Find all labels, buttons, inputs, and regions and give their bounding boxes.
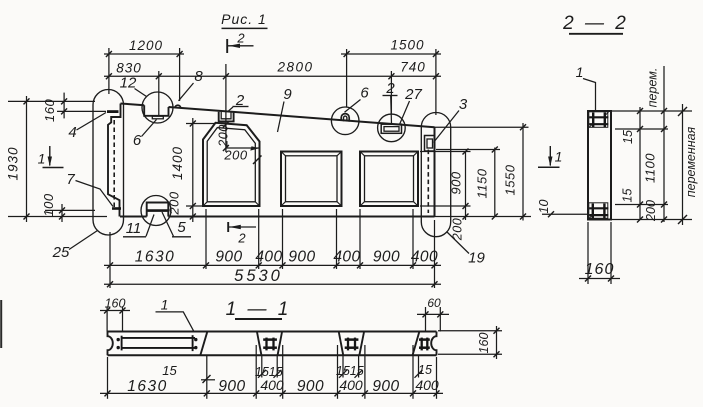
svg-text:1100: 1100	[643, 153, 658, 183]
svg-text:900: 900	[288, 249, 315, 266]
svg-text:7: 7	[66, 171, 75, 188]
svg-text:1: 1	[576, 64, 584, 80]
svg-text:15: 15	[621, 189, 635, 203]
svg-text:1515: 1515	[336, 364, 364, 378]
svg-text:200: 200	[167, 191, 182, 215]
svg-text:200: 200	[644, 200, 658, 222]
svg-text:160: 160	[477, 333, 491, 354]
svg-text:160: 160	[585, 261, 615, 278]
svg-text:400: 400	[411, 249, 438, 266]
svg-text:1: 1	[161, 297, 169, 313]
svg-text:2: 2	[385, 80, 395, 97]
svg-text:1400: 1400	[170, 146, 185, 180]
svg-text:900: 900	[373, 249, 400, 266]
svg-text:100: 100	[41, 193, 56, 216]
svg-text:400: 400	[260, 377, 284, 393]
svg-text:1930: 1930	[6, 146, 21, 180]
svg-text:200: 200	[223, 148, 247, 163]
svg-text:5: 5	[177, 219, 186, 236]
svg-text:900: 900	[297, 378, 324, 395]
svg-text:3: 3	[459, 96, 468, 113]
svg-text:1500: 1500	[390, 38, 424, 53]
svg-text:5530: 5530	[234, 267, 283, 285]
svg-text:6: 6	[133, 132, 142, 149]
svg-text:10: 10	[537, 200, 551, 214]
svg-text:27: 27	[404, 86, 422, 103]
svg-text:1: 1	[38, 151, 46, 167]
svg-text:15: 15	[162, 363, 177, 378]
svg-text:15: 15	[418, 363, 432, 377]
svg-text:9: 9	[283, 86, 292, 103]
svg-text:160: 160	[42, 99, 57, 122]
svg-text:2: 2	[236, 31, 245, 46]
svg-text:160: 160	[105, 297, 126, 311]
svg-text:19: 19	[468, 250, 485, 267]
svg-text:60: 60	[427, 296, 441, 310]
svg-text:2: 2	[237, 231, 246, 246]
svg-text:1: 1	[555, 149, 563, 165]
svg-text:2 — 2: 2 — 2	[562, 13, 629, 34]
svg-text:перем.: перем.	[646, 68, 660, 108]
svg-text:200: 200	[217, 124, 231, 147]
svg-text:900: 900	[215, 249, 242, 266]
svg-text:400: 400	[255, 249, 282, 266]
svg-text:переменная: переменная	[684, 126, 698, 197]
svg-text:900: 900	[372, 378, 399, 395]
svg-text:400: 400	[339, 377, 363, 393]
svg-text:1 — 1: 1 — 1	[226, 299, 292, 320]
svg-text:15: 15	[621, 130, 635, 144]
svg-text:11: 11	[126, 220, 142, 237]
svg-text:900: 900	[218, 378, 245, 395]
svg-text:25: 25	[52, 244, 70, 261]
svg-text:6: 6	[360, 85, 369, 102]
svg-text:200: 200	[451, 218, 465, 241]
svg-text:1200: 1200	[129, 38, 163, 53]
svg-text:1550: 1550	[503, 164, 518, 195]
svg-text:740: 740	[400, 60, 426, 75]
svg-text:400: 400	[333, 249, 360, 266]
svg-text:8: 8	[194, 68, 203, 85]
svg-text:2800: 2800	[276, 60, 313, 75]
svg-text:1630: 1630	[127, 378, 167, 395]
svg-text:830: 830	[116, 61, 142, 76]
svg-text:1150: 1150	[475, 168, 490, 198]
svg-text:4: 4	[68, 124, 76, 141]
svg-text:400: 400	[415, 377, 439, 393]
svg-text:900: 900	[449, 171, 464, 194]
svg-text:1630: 1630	[135, 249, 175, 266]
svg-text:Рис. 1: Рис. 1	[221, 11, 267, 27]
